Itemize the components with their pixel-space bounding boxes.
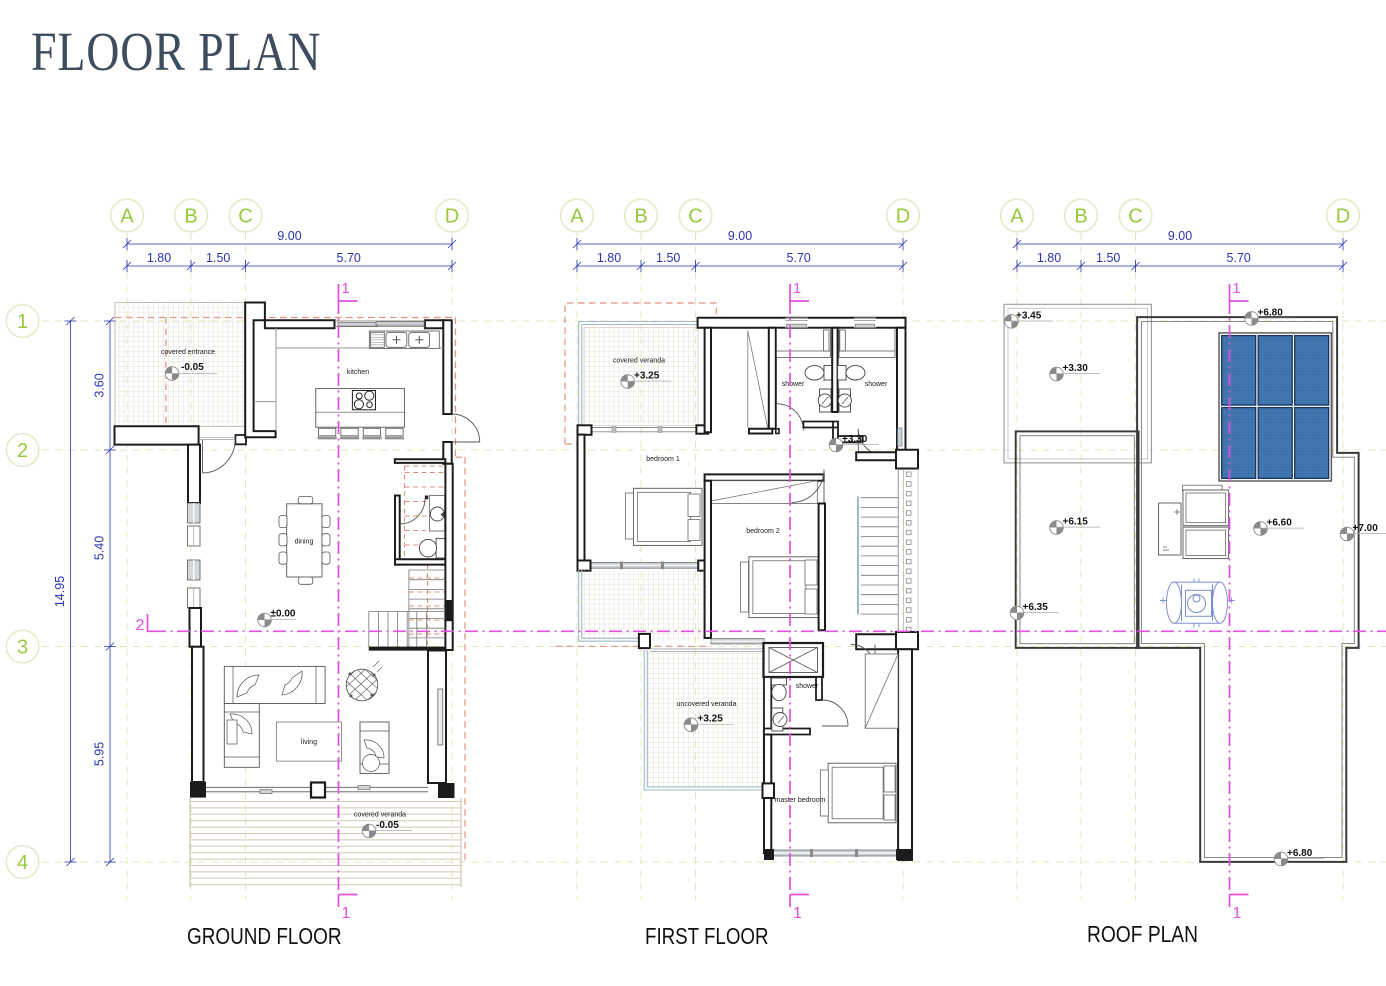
svg-text:-0.05: -0.05 [181,362,204,373]
svg-text:1.80: 1.80 [147,251,171,265]
svg-text:2: 2 [17,440,28,462]
svg-text:5.95: 5.95 [93,742,107,766]
svg-text:B: B [1074,206,1087,228]
svg-text:9.00: 9.00 [1168,229,1192,243]
svg-text:uncovered veranda: uncovered veranda [677,701,737,708]
svg-text:1.80: 1.80 [597,251,621,265]
svg-text:bedroom 1: bedroom 1 [646,456,680,463]
svg-text:ROOF PLAN: ROOF PLAN [1087,921,1198,947]
svg-text:14.95: 14.95 [53,576,67,607]
svg-text:+3.30: +3.30 [842,434,868,445]
svg-text:4: 4 [17,852,28,874]
svg-text:1.80: 1.80 [1037,251,1061,265]
svg-text:1: 1 [793,281,801,297]
svg-text:9.00: 9.00 [277,229,301,243]
svg-text:D: D [896,206,910,228]
svg-text:bedroom 2: bedroom 2 [746,528,780,535]
svg-text:1: 1 [1232,281,1240,297]
svg-text:D: D [1336,206,1350,228]
svg-text:2: 2 [136,617,145,634]
svg-text:D: D [445,206,459,228]
svg-text:C: C [688,206,702,228]
svg-text:shower: shower [782,381,805,388]
svg-text:FIRST FLOOR: FIRST FLOOR [645,923,769,949]
svg-text:3: 3 [17,637,28,659]
svg-text:1: 1 [793,905,802,922]
svg-text:FLOOR PLAN: FLOOR PLAN [31,22,321,83]
svg-text:1.50: 1.50 [656,251,680,265]
svg-text:3.60: 3.60 [93,373,107,397]
svg-text:+3.30: +3.30 [1063,363,1089,374]
svg-text:+6.35: +6.35 [1023,602,1049,613]
svg-text:GROUND FLOOR: GROUND FLOOR [187,923,342,949]
svg-text:1: 1 [17,311,28,333]
svg-text:9.00: 9.00 [728,229,752,243]
svg-text:1: 1 [341,281,349,297]
svg-text:B: B [634,206,647,228]
svg-text:+3.25: +3.25 [634,371,660,382]
svg-text:+3.25: +3.25 [698,714,724,725]
svg-text:kitchen: kitchen [347,369,369,376]
svg-text:A: A [120,206,134,228]
svg-text:1: 1 [342,905,351,922]
svg-text:shower: shower [796,683,819,690]
svg-text:C: C [1128,206,1142,228]
svg-text:dining: dining [295,539,314,546]
svg-text:+6.80: +6.80 [1258,308,1284,319]
svg-text:B: B [184,206,197,228]
svg-text:+6.80: +6.80 [1287,848,1313,859]
svg-text:5.70: 5.70 [337,251,361,265]
svg-text:C: C [238,206,252,228]
svg-text:1: 1 [1233,905,1242,922]
svg-text:1.50: 1.50 [1096,251,1120,265]
svg-text:-0.05: -0.05 [376,820,399,831]
svg-text:covered veranda: covered veranda [613,358,665,365]
svg-text:A: A [570,206,584,228]
svg-text:A: A [1010,206,1024,228]
svg-text:shower: shower [865,381,888,388]
svg-text:±0.00: ±0.00 [271,609,296,620]
svg-text:+6.15: +6.15 [1063,517,1089,528]
svg-text:covered entrance: covered entrance [161,349,215,356]
svg-text:living: living [301,739,317,746]
svg-text:master bedroom: master bedroom [775,797,826,804]
svg-text:+3.45: +3.45 [1016,311,1042,322]
svg-text:+6.60: +6.60 [1267,518,1293,529]
svg-text:5.40: 5.40 [93,536,107,560]
svg-text:+7.00: +7.00 [1353,523,1379,534]
svg-text:5.70: 5.70 [787,251,811,265]
svg-text:covered veranda: covered veranda [354,812,406,819]
svg-text:1.50: 1.50 [206,251,230,265]
svg-text:5.70: 5.70 [1227,251,1251,265]
